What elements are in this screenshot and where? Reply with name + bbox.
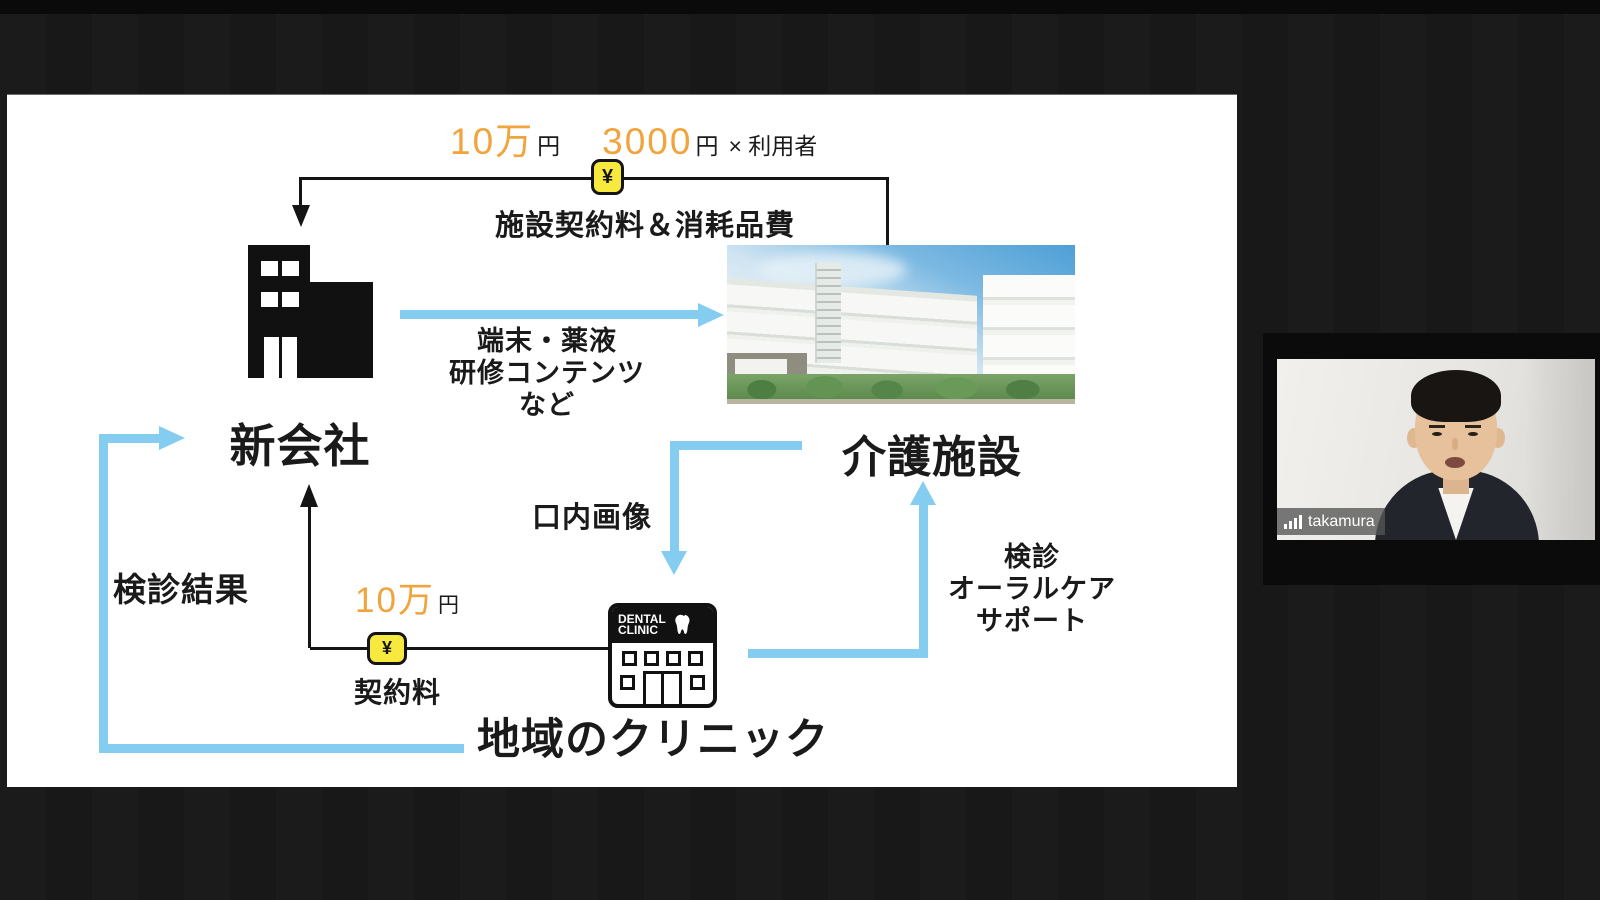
presenter-eye [1468,432,1478,436]
facility-contract-label: 施設契約料＆消耗品費 [430,202,860,244]
contract-fee-arrowhead [300,484,318,507]
supplies-label: 端末・薬液 研修コンテンツ など [397,325,697,421]
yen-badge-contract: ¥ [367,632,407,665]
presenter-eye [1432,432,1442,436]
facility-fee-amount-group: 10万 円 3000 円 × 利用者 [450,111,817,165]
care-facility-photo [727,245,1075,404]
contract-fee-amount: 10万 [355,572,435,623]
oral-images-label: 口内画像 [512,494,672,536]
shared-slide: 10万 円 3000 円 × 利用者 ¥ 施設契約料＆消耗品費 新会社 端末・薬… [7,94,1237,787]
letterbox-top [0,0,1600,14]
contract-fee-label: 契約料 [340,671,455,711]
participant-name-tag: takamura [1277,508,1385,535]
results-arrowhead [159,426,185,450]
wall-shadow [1525,359,1595,540]
contract-fee-unit: 円 [438,589,459,619]
per-user-fee-multiplier: × 利用者 [728,127,817,161]
supplies-arrow-shaft [400,310,700,319]
supplies-line1: 端末・薬液 [397,325,697,357]
supplies-line3: など [397,389,697,421]
presenter-mouth [1445,457,1465,468]
tooth-icon [672,613,696,637]
presenter-eyebrow [1429,425,1445,428]
fee-flow-line-left-drop [299,177,302,207]
support-line3: サポート [907,605,1157,637]
support-label: 検診 オーラルケア サポート [907,541,1157,637]
oral-images-line-h [670,441,802,450]
clinic-sign-line2: CLINIC [618,625,666,636]
yen-badge-top: ¥ [591,159,624,195]
dental-clinic-icon: DENTAL CLINIC [608,603,717,708]
supplies-line2: 研修コンテンツ [397,357,697,389]
meeting-screen: 10万 円 3000 円 × 利用者 ¥ 施設契約料＆消耗品費 新会社 端末・薬… [0,0,1600,900]
signal-bars-icon [1284,515,1302,529]
results-line-top-h [99,434,161,443]
fee-flow-line-right-drop [886,177,889,245]
support-arrowhead [910,481,936,505]
dental-clinic-sign: DENTAL CLINIC [612,607,713,643]
node-care-facility: 介護施設 [777,421,1087,485]
per-user-fee-unit: 円 [695,127,718,161]
oral-images-arrowhead [661,551,687,575]
facility-fee-unit: 円 [537,127,560,161]
per-user-fee-amount: 3000 [602,121,692,163]
support-line2: オーラルケア [907,573,1157,605]
supplies-arrowhead [698,303,724,327]
facility-fee-amount: 10万 [450,111,534,165]
checkup-results-label: 検診結果 [113,563,249,611]
yen-symbol: ¥ [382,638,392,659]
contract-fee-line-h [310,647,608,650]
presenter-nose [1452,438,1458,450]
results-line-v [99,434,108,753]
office-building-icon [248,245,373,378]
results-line-bottom-h [99,744,464,753]
yen-symbol: ¥ [602,166,613,189]
webcam-video-tile[interactable]: takamura [1277,359,1595,540]
node-local-clinic: 地域のクリニック [458,705,848,767]
node-new-company: 新会社 [195,410,405,476]
support-line-h [748,649,928,658]
contract-fee-line-v [308,507,311,648]
support-line1: 検診 [907,541,1157,573]
participant-name: takamura [1308,513,1375,531]
arrowhead-to-new-company-top [292,205,310,227]
presenter-hair [1411,370,1501,422]
contract-fee-amount-group: 10万 円 [355,572,459,623]
presenter-eyebrow [1465,425,1481,428]
